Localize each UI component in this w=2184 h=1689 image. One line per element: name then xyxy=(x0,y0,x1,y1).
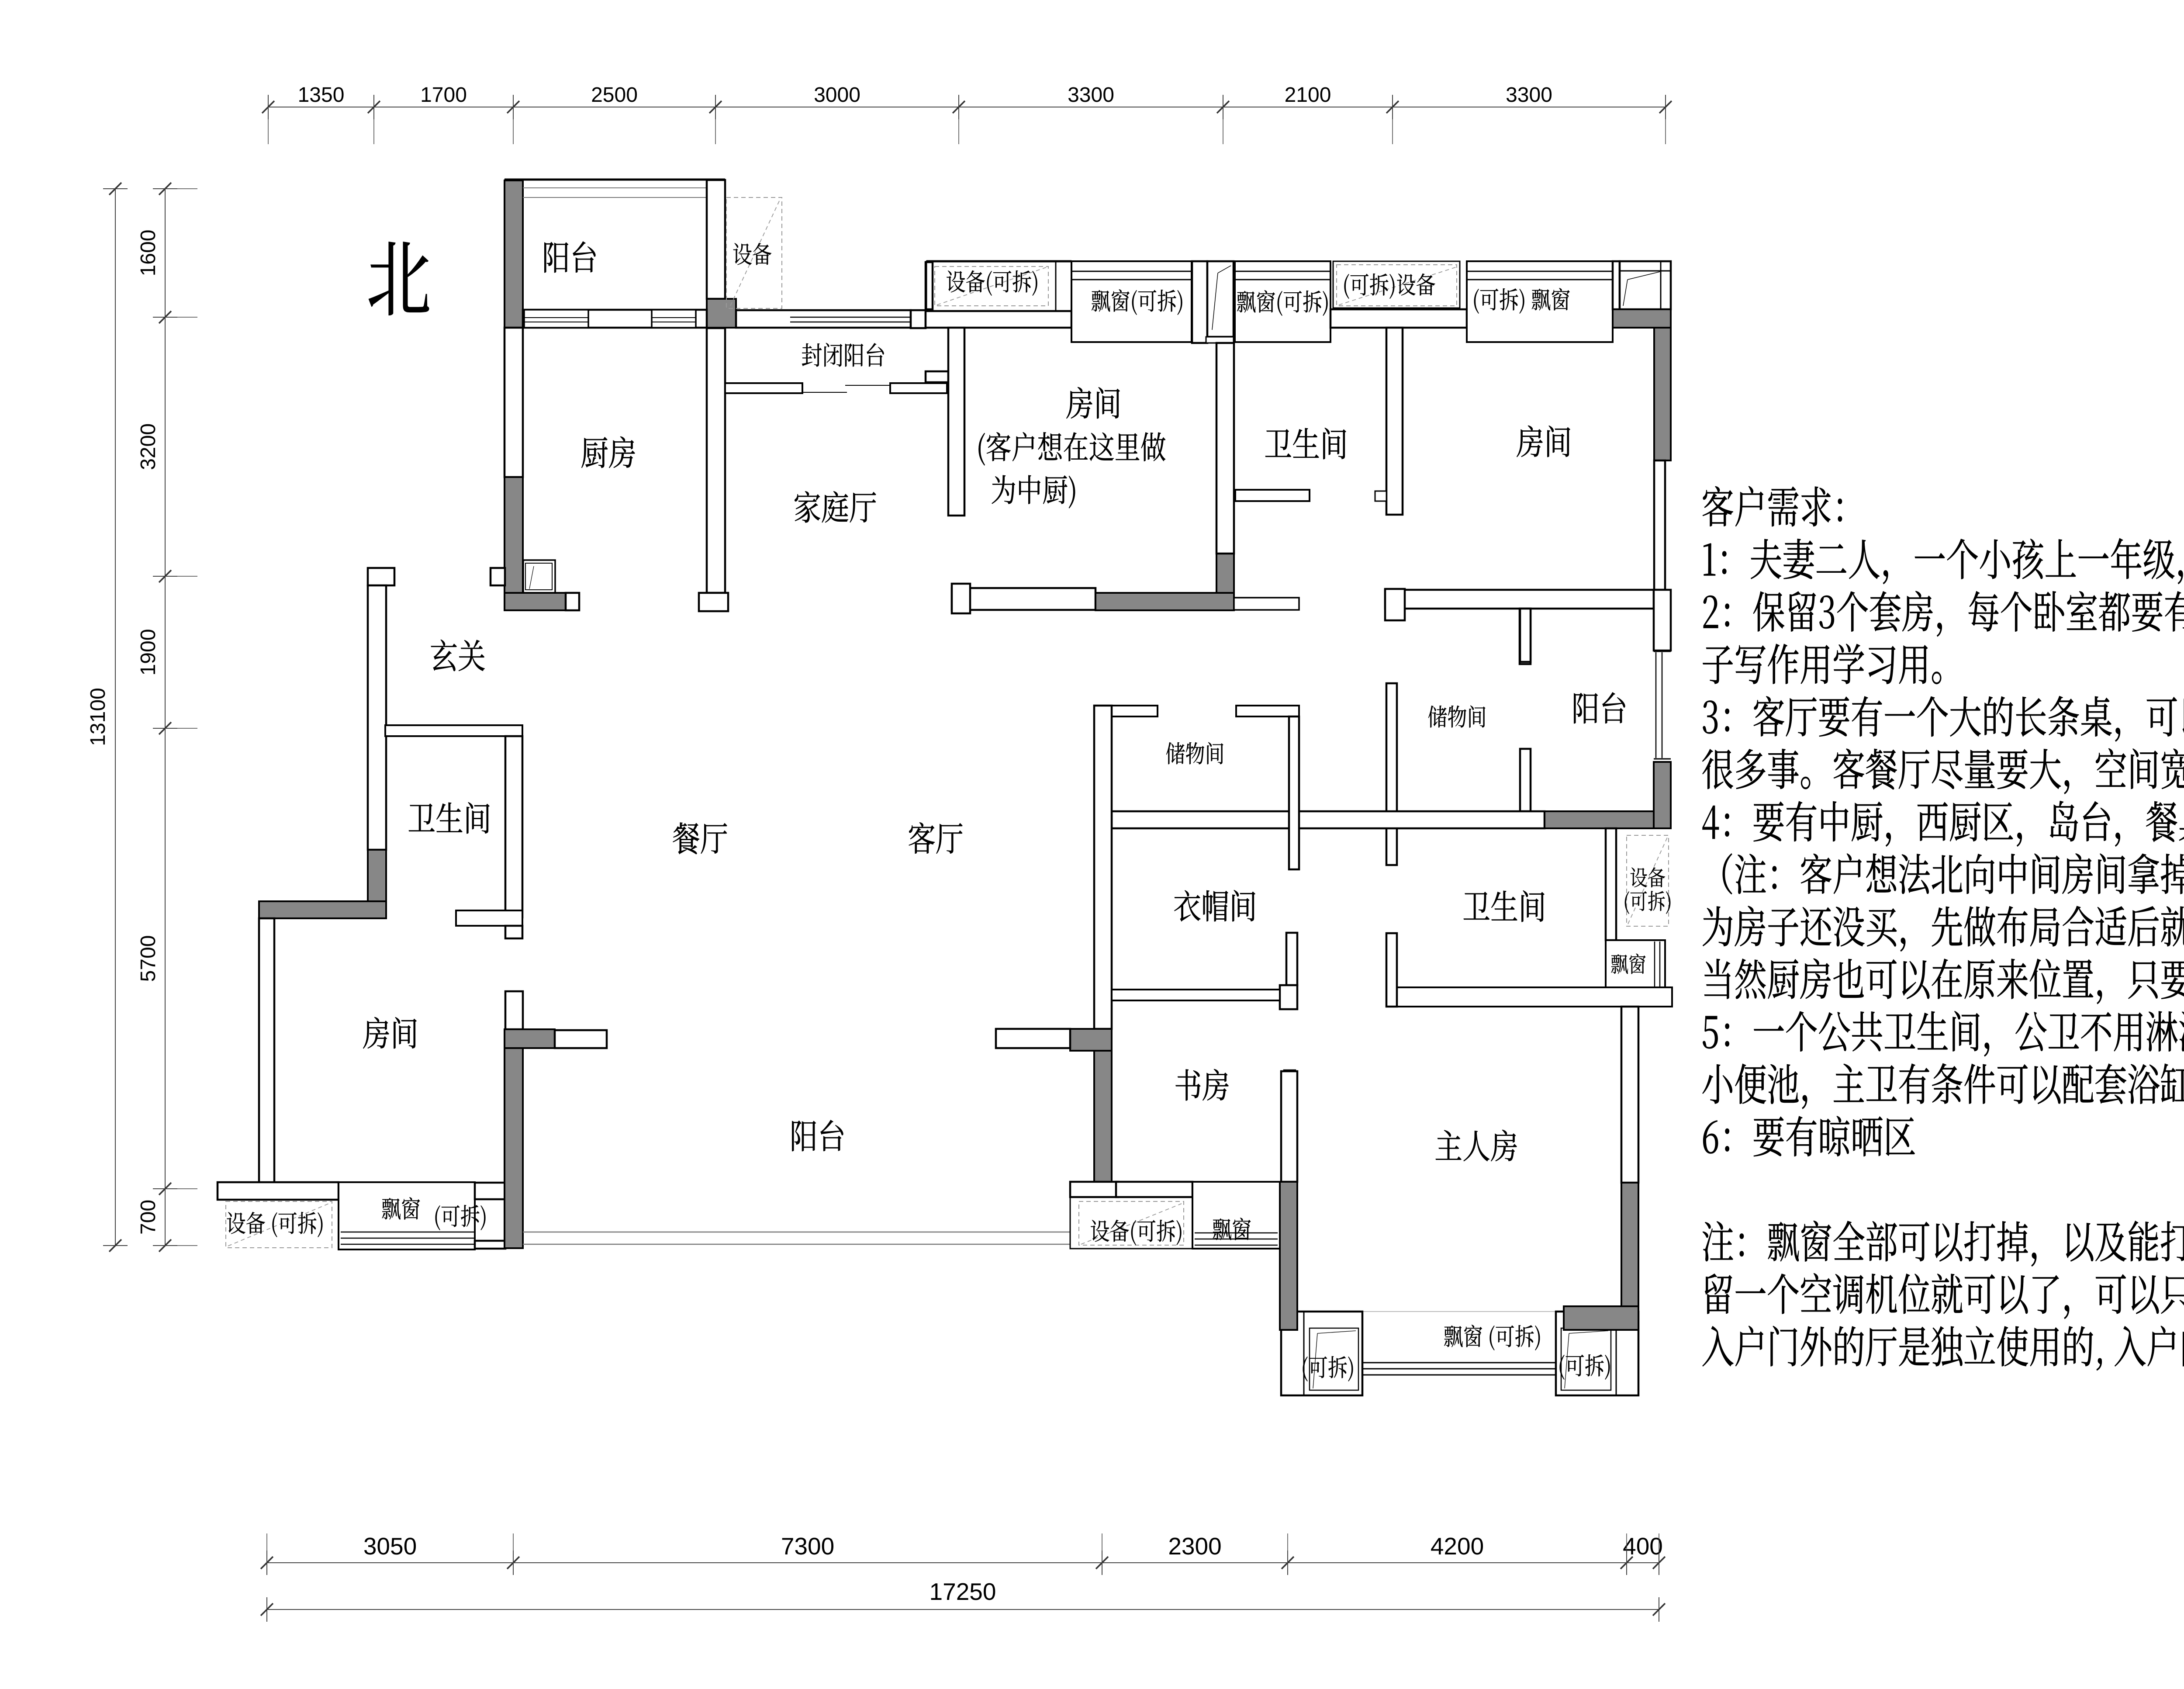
svg-text:700: 700 xyxy=(137,1200,160,1235)
svg-text:1350: 1350 xyxy=(298,83,345,107)
svg-text:13100: 13100 xyxy=(86,688,110,746)
svg-text:2100: 2100 xyxy=(1285,83,1331,107)
svg-text:400: 400 xyxy=(1623,1533,1663,1560)
svg-text:2300: 2300 xyxy=(1168,1533,1221,1560)
svg-text:4200: 4200 xyxy=(1431,1533,1484,1560)
svg-text:17250: 17250 xyxy=(930,1578,996,1605)
svg-text:3300: 3300 xyxy=(1506,83,1552,107)
svg-text:1600: 1600 xyxy=(137,230,160,277)
svg-text:2500: 2500 xyxy=(591,83,638,107)
svg-text:1700: 1700 xyxy=(420,83,467,107)
svg-text:3050: 3050 xyxy=(363,1533,417,1560)
svg-text:3300: 3300 xyxy=(1068,83,1114,107)
svg-text:3000: 3000 xyxy=(814,83,860,107)
svg-text:7300: 7300 xyxy=(781,1533,834,1560)
svg-text:3200: 3200 xyxy=(137,423,160,470)
svg-text:1900: 1900 xyxy=(137,629,160,676)
svg-text:5700: 5700 xyxy=(137,935,160,982)
